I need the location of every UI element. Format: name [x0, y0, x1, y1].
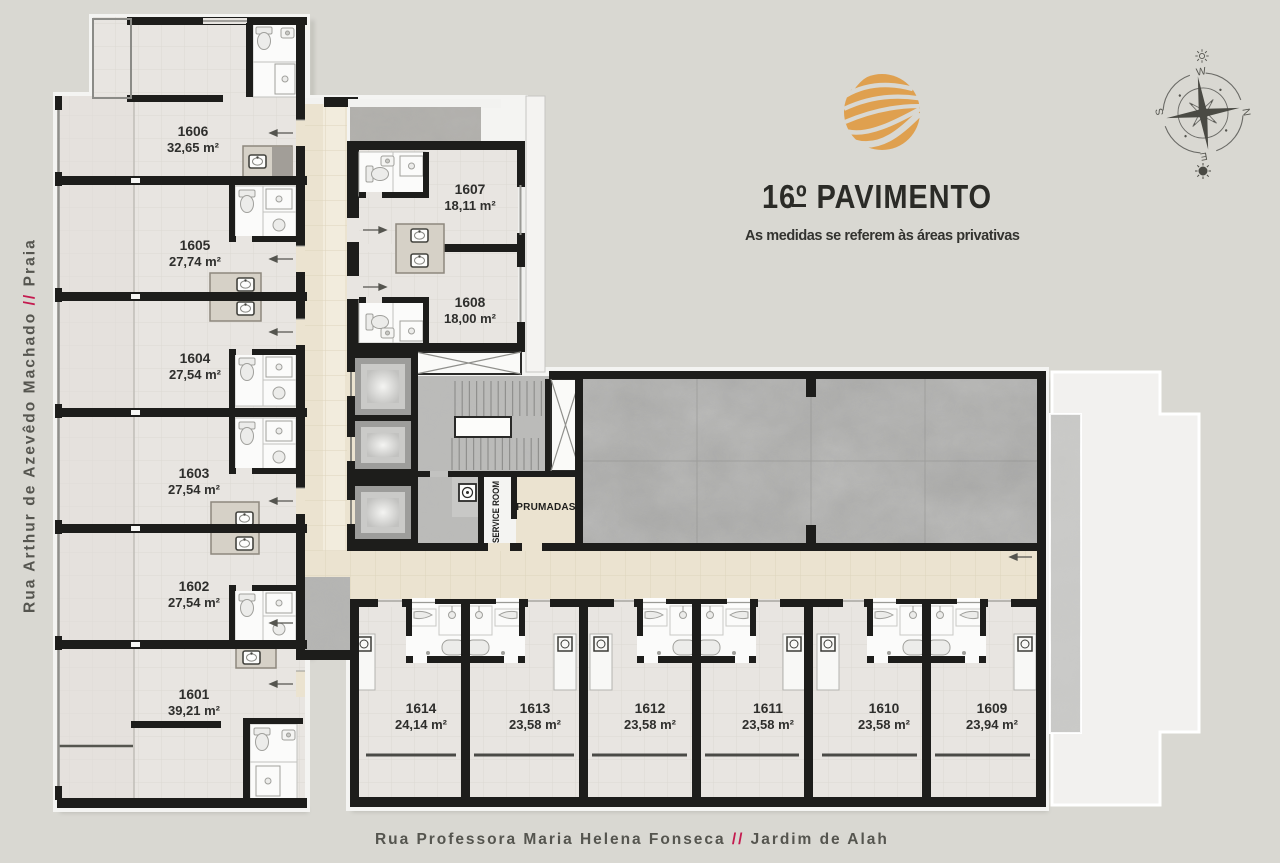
svg-text:27,54 m²: 27,54 m²: [168, 482, 221, 497]
svg-text:32,65 m²: 32,65 m²: [167, 140, 220, 155]
svg-text:1601: 1601: [179, 687, 210, 702]
svg-text:1604: 1604: [180, 351, 211, 366]
svg-text:27,74 m²: 27,74 m²: [169, 254, 222, 269]
svg-text:24,14 m²: 24,14 m²: [395, 717, 448, 732]
svg-text:1607: 1607: [455, 182, 486, 197]
svg-text:Rua Arthur de Azevêdo Machado: Rua Arthur de Azevêdo Machado // Praia: [22, 239, 39, 613]
svg-text:18,00 m²: 18,00 m²: [444, 311, 497, 326]
svg-text:23,58 m²: 23,58 m²: [858, 717, 911, 732]
svg-text:1613: 1613: [520, 701, 551, 716]
svg-text:23,94 m²: 23,94 m²: [966, 717, 1019, 732]
svg-text:27,54 m²: 27,54 m²: [168, 595, 221, 610]
svg-text:1603: 1603: [179, 466, 210, 481]
svg-text:1610: 1610: [869, 701, 900, 716]
svg-text:1612: 1612: [635, 701, 666, 716]
svg-text:SERVICE ROOM: SERVICE ROOM: [491, 481, 501, 543]
svg-text:23,58 m²: 23,58 m²: [624, 717, 677, 732]
svg-text:1606: 1606: [178, 124, 209, 139]
svg-text:1608: 1608: [455, 295, 486, 310]
svg-text:1611: 1611: [753, 701, 783, 716]
svg-text:1605: 1605: [180, 238, 211, 253]
svg-text:16º PAVIMENTO: 16º PAVIMENTO: [762, 178, 992, 215]
svg-text:23,58 m²: 23,58 m²: [509, 717, 562, 732]
svg-text:39,21 m²: 39,21 m²: [168, 703, 221, 718]
svg-text:27,54 m²: 27,54 m²: [169, 367, 222, 382]
svg-text:PRUMADAS: PRUMADAS: [516, 502, 576, 513]
svg-text:23,58 m²: 23,58 m²: [742, 717, 795, 732]
svg-text:1614: 1614: [406, 701, 437, 716]
svg-text:1602: 1602: [179, 579, 210, 594]
svg-text:Rua Professora Maria Helena Fo: Rua Professora Maria Helena Fonseca // J…: [375, 831, 888, 848]
svg-text:As medidas se referem às áreas: As medidas se referem às áreas privativa…: [745, 228, 1020, 244]
svg-text:1609: 1609: [977, 701, 1008, 716]
svg-text:18,11 m²: 18,11 m²: [444, 198, 496, 213]
